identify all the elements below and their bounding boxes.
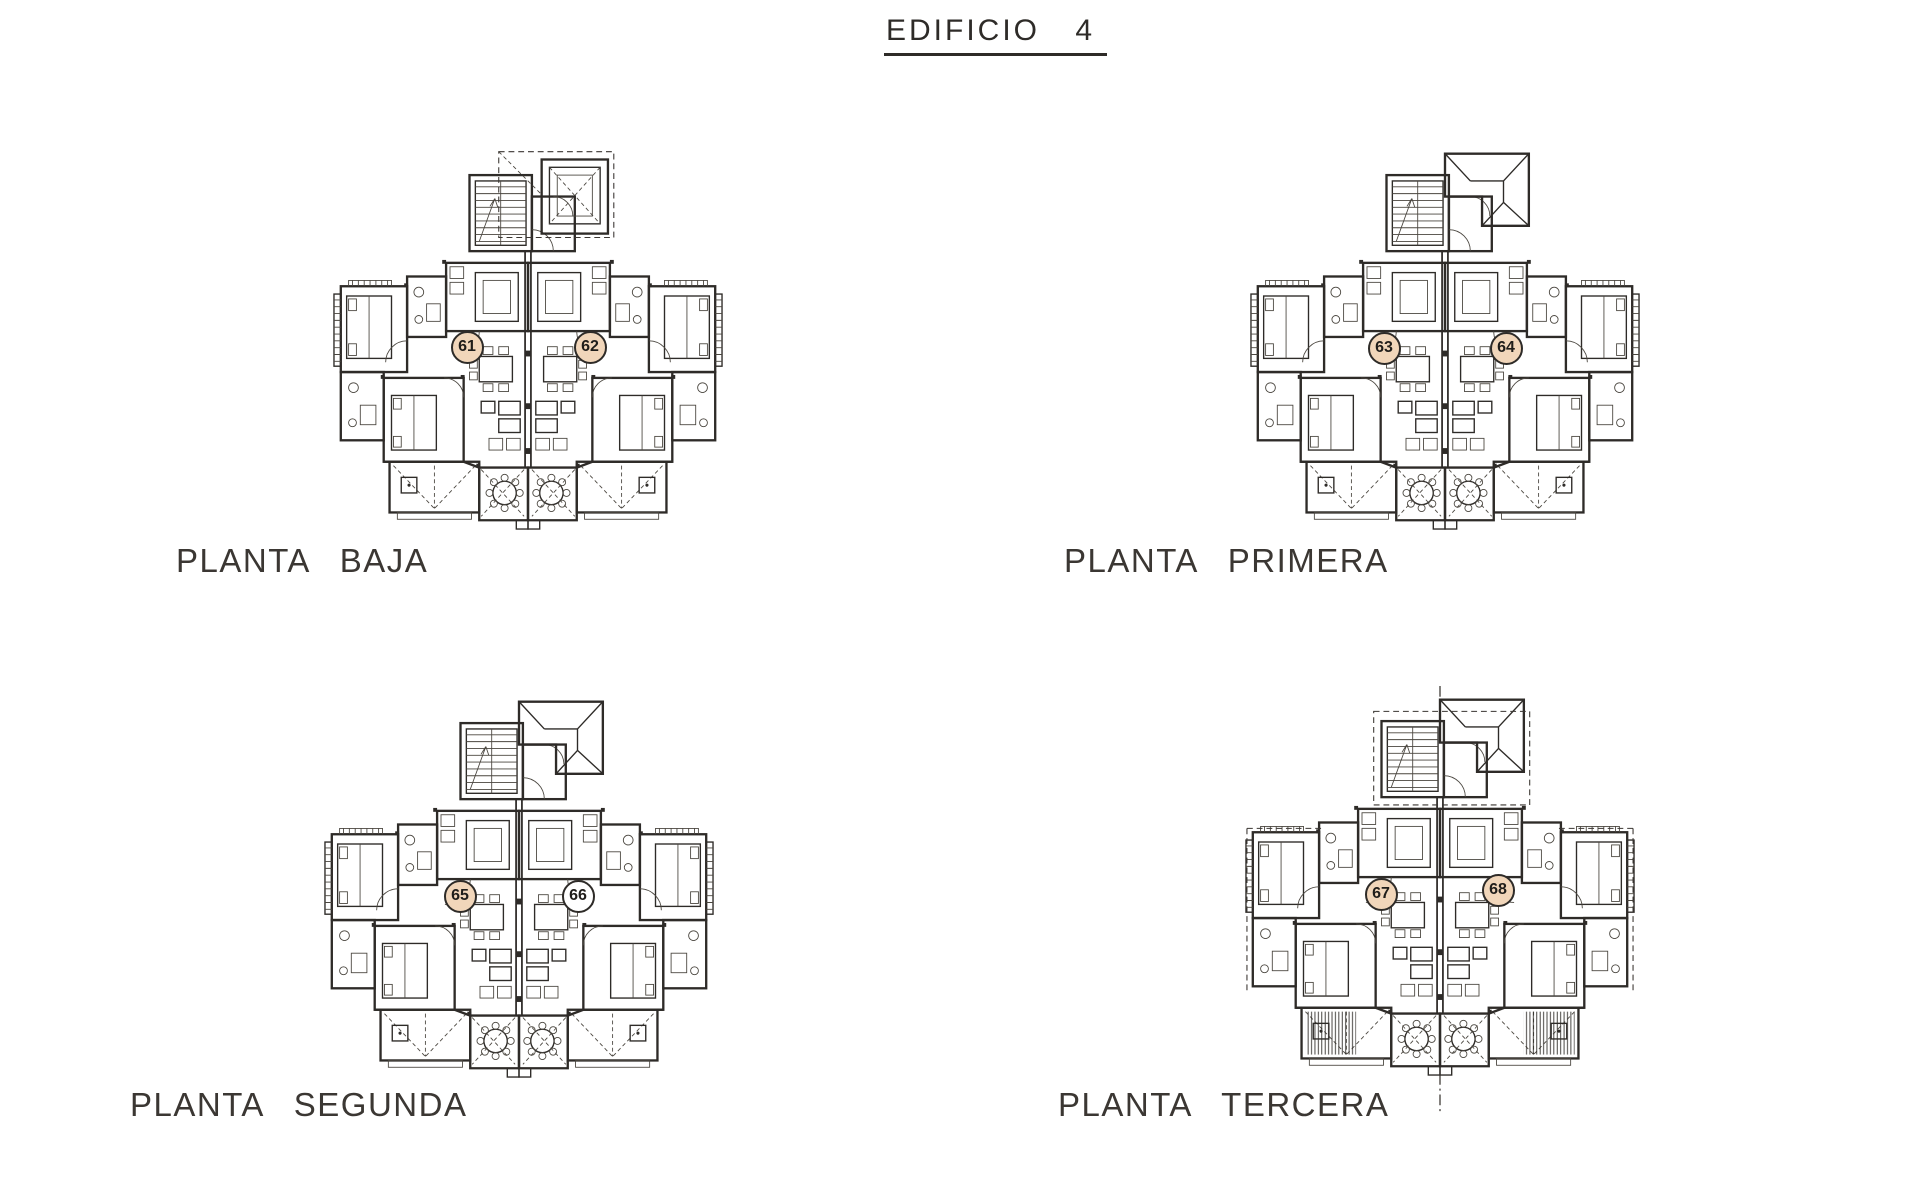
floor-plan-drawing-tercera: [1245, 686, 1635, 1115]
unit-badge-61: 61: [451, 331, 484, 364]
plan-section-planta-segunda: [324, 688, 714, 1078]
unit-badge-63: 63: [1368, 332, 1401, 365]
plan-label-planta-baja: PLANTA BAJA: [176, 542, 428, 580]
unit-badge-65: 65: [444, 880, 477, 913]
floor-plan-drawing-primera: [1250, 140, 1640, 530]
unit-badge-67: 67: [1365, 878, 1398, 911]
floor-plan-drawing-baja: [333, 140, 723, 530]
plan-section-planta-tercera: [1245, 686, 1635, 1115]
plan-label-planta-tercera: PLANTA TERCERA: [1058, 1086, 1389, 1124]
floor-plan-drawing-segunda: [324, 688, 714, 1078]
unit-badge-66: 66: [562, 880, 595, 913]
plan-section-planta-primera: [1250, 140, 1640, 530]
plan-label-planta-segunda: PLANTA SEGUNDA: [130, 1086, 467, 1124]
unit-badge-62: 62: [574, 331, 607, 364]
unit-badge-68: 68: [1482, 874, 1515, 907]
drawing-sheet: { "sheet": { "title": "EDIFICIO 4", "typ…: [0, 0, 1920, 1187]
plan-section-planta-baja: [333, 140, 723, 530]
unit-badge-64: 64: [1490, 332, 1523, 365]
plan-label-planta-primera: PLANTA PRIMERA: [1064, 542, 1389, 580]
sheet-title: EDIFICIO 4: [884, 14, 1107, 56]
